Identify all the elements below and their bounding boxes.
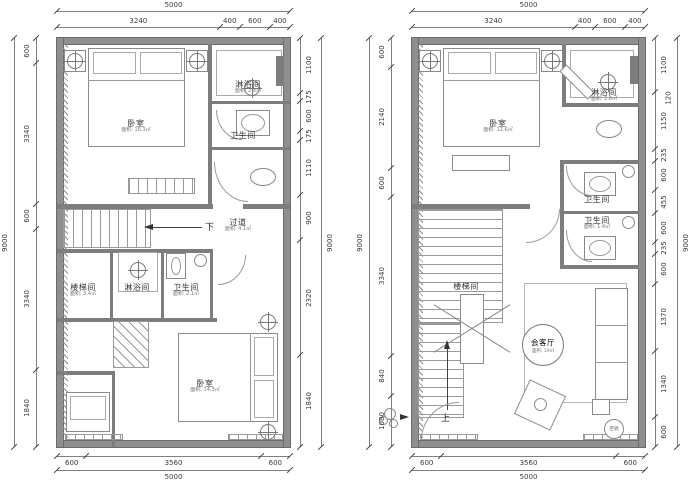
room-name: 淋浴间: [112, 283, 162, 292]
floor-plan-drawing: 卧室 面积: 16.3㎡ 淋浴间 面积: 2.8㎡ 卫生间 下 过道 面积: 4…: [0, 0, 694, 473]
dim-bottom-overall: 5000: [57, 464, 290, 476]
wall: [560, 211, 639, 214]
ac-label: 空调: [610, 426, 619, 432]
armchair-cushion: [534, 398, 547, 411]
wall: [560, 265, 639, 269]
wall: [560, 160, 639, 164]
dim-top-overall: 5000: [57, 5, 290, 17]
room-area: 面积: 16.3㎡: [106, 128, 166, 134]
room-label-bedroom: 卧室 面积: 12.6㎡: [468, 119, 528, 134]
toilet: [166, 253, 186, 279]
dim-left-overall: 9000: [363, 38, 375, 447]
room-label-toilet: 卫生间: [213, 131, 273, 140]
room-area: 面积: 2.6㎡: [574, 97, 634, 103]
door-arc: [526, 209, 560, 243]
door-arc: [214, 162, 248, 202]
shower-shelf: [630, 56, 638, 84]
door-arc: [566, 230, 592, 262]
wall: [560, 160, 564, 268]
dim-left-segments: 600214060033408401080: [385, 38, 397, 447]
up-arrow-line: [447, 348, 448, 410]
sofa: [595, 288, 628, 400]
wall: [639, 38, 645, 447]
side-table: [592, 399, 610, 415]
room-name: 楼梯间: [436, 282, 496, 291]
room-label-bedroom: 卧室 面积: 16.3㎡: [106, 119, 166, 134]
wall: [208, 147, 290, 150]
bed-blanket-line: [443, 80, 540, 81]
room-name: 卫生间: [567, 195, 627, 204]
dim-bottom-overall: 5000: [412, 464, 645, 476]
door-arc: [218, 255, 246, 285]
dim-top-overall: 5000: [412, 5, 645, 17]
room-area: 面积: 1.4㎡: [567, 225, 627, 231]
sofa-seat-line: [595, 325, 628, 326]
door-arc: [566, 166, 592, 196]
room-label-stairwell: 楼梯间 面积: 3.4㎡: [58, 283, 108, 298]
room-label-corridor: 过道 面积: 4.1㎡: [218, 218, 258, 233]
dim-left-overall: 9000: [8, 38, 20, 447]
room-label-bedroom: 卧室 面积: 14.3㎡: [175, 379, 235, 394]
sofa-seat: [70, 396, 106, 420]
lamp-icon: [189, 53, 205, 69]
wall: [57, 38, 290, 44]
wall: [412, 441, 645, 447]
bed-blanket-line: [88, 80, 185, 81]
room-label-shower: 淋浴间: [112, 283, 162, 292]
washbasin: [622, 165, 635, 178]
pillow: [254, 380, 274, 418]
dim-right-overall: 9000: [315, 38, 327, 447]
room-name: 会客厅: [531, 337, 555, 348]
lamp-icon: [544, 53, 560, 69]
pillow: [93, 52, 136, 74]
washbasin: [250, 168, 276, 186]
room-area: 面积: 3.4㎡: [58, 292, 108, 298]
shower-head-icon: [130, 262, 146, 278]
wall: [208, 44, 212, 206]
room-area: 面积: 19㎡: [532, 348, 554, 354]
dim-bottom-segments: 6003560600: [412, 450, 645, 462]
room-label-toilet: 卫生间 面积: 2.1㎡: [161, 283, 211, 298]
air-conditioner-badge: 空调: [604, 419, 624, 439]
wall: [412, 38, 645, 44]
pillow: [495, 52, 537, 74]
stair-treads: [63, 209, 151, 248]
room-area: 面积: 4.1㎡: [218, 227, 258, 233]
wall: [243, 204, 290, 209]
room-area: 面积: 12.6㎡: [468, 128, 528, 134]
down-arrow-head-icon: [144, 224, 153, 230]
dim-right-segments: 1100175600175111090023201840: [294, 38, 306, 447]
pillow: [140, 52, 182, 74]
room-area: 面积: 2.1㎡: [161, 292, 211, 298]
room-name: 卫生间: [213, 131, 273, 140]
wall: [284, 38, 290, 447]
washbasin: [194, 254, 207, 267]
lamp-icon: [260, 424, 276, 440]
dim-right-segments: 1100115023560045560023560013701340600: [649, 38, 661, 447]
room-label-living: 会客厅 面积: 19㎡: [522, 324, 564, 366]
dim-right-overall: 9000: [671, 38, 683, 447]
dim-bottom-segments: 6003560600: [57, 450, 290, 462]
sofa-seat-line: [595, 362, 628, 363]
lamp-icon: [422, 53, 438, 69]
wall: [57, 441, 290, 447]
room-label-toilet: 卫生间: [567, 195, 627, 204]
winder-stair: [113, 321, 149, 368]
room-label-shower: 淋浴间 面积: 2.6㎡: [574, 88, 634, 103]
up-arrow-head-icon: [444, 340, 450, 349]
radiator: [128, 178, 195, 194]
room-label-toilet: 卫生间 面积: 1.4㎡: [567, 216, 627, 231]
dim-top-segments: 3240400600400: [412, 21, 645, 33]
washbasin: [596, 120, 622, 138]
pillow: [448, 52, 491, 74]
entry-arrow-icon: [400, 414, 409, 420]
dresser: [452, 155, 510, 171]
room-label-stairwell: 楼梯间: [436, 282, 496, 291]
dim-left-segments: 600334060033401840: [30, 38, 42, 447]
down-label: 下: [205, 220, 214, 233]
room-label-shower: 淋浴间 面积: 2.8㎡: [218, 80, 278, 95]
pillow: [254, 337, 274, 376]
bed-blanket-line: [250, 333, 251, 422]
dim-right-secondary: 120: [665, 91, 673, 104]
dim-top-segments: 3240400600400: [57, 21, 290, 33]
down-arrow-line: [150, 227, 202, 228]
lamp-icon: [67, 53, 83, 69]
room-area: 面积: 14.3㎡: [175, 388, 235, 394]
lamp-icon: [260, 314, 276, 330]
room-area: 面积: 2.8㎡: [218, 89, 278, 95]
balcony-rail: [65, 434, 123, 440]
wall: [208, 101, 290, 104]
wall: [562, 103, 639, 107]
